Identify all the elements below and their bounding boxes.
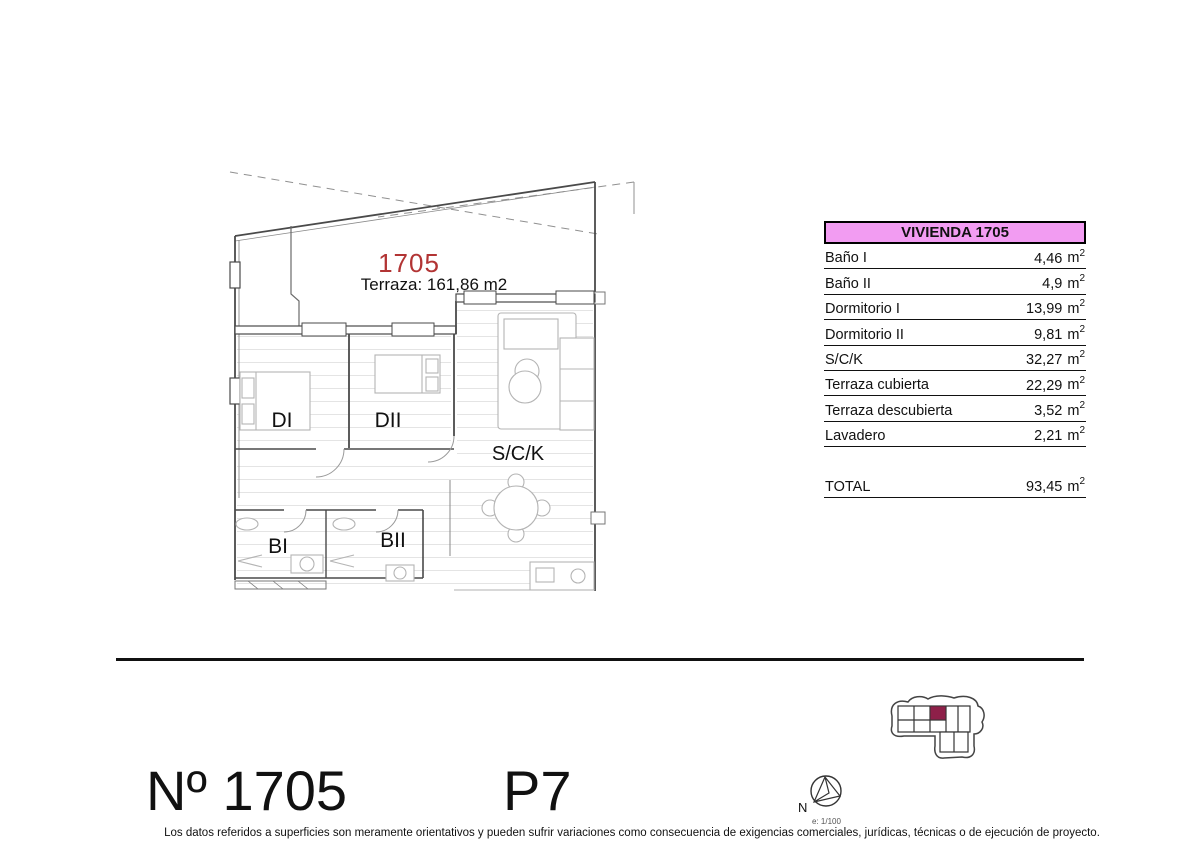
room-label-bii: BII: [380, 529, 406, 552]
roof-construction-lines: [230, 172, 634, 234]
room-label-di: DI: [272, 409, 293, 432]
row-value: 3,52m2: [1034, 401, 1085, 419]
row-value: 9,81m2: [1034, 325, 1085, 343]
disclaimer-text: Los datos referidos a superficies son me…: [0, 827, 1200, 839]
building-highlight-unit: [930, 706, 946, 720]
table-row: Lavadero 2,21m2: [824, 422, 1086, 447]
plan-unit-number: 1705: [378, 248, 440, 278]
unit-number-label: Nº 1705: [146, 758, 347, 823]
table-row: Baño I 4,46m2: [824, 244, 1086, 269]
page: 1705 Terraza: 161,86 m2 DI DII S/C/K BI …: [0, 0, 1200, 848]
room-label-bi: BI: [268, 535, 288, 558]
table-row: Dormitorio I 13,99m2: [824, 295, 1086, 320]
table-header: VIVIENDA 1705: [824, 221, 1086, 244]
room-label-dii: DII: [375, 409, 402, 432]
floor-plan: 1705 Terraza: 161,86 m2 DI DII S/C/K BI …: [228, 168, 640, 598]
floor-label: P7: [503, 758, 572, 823]
divider-line: [116, 658, 1084, 661]
room-label-sck: S/C/K: [492, 443, 545, 465]
row-label: Terraza descubierta: [825, 403, 952, 419]
row-value: 32,27m2: [1026, 350, 1085, 368]
row-label: Dormitorio I: [825, 301, 900, 317]
row-label: S/C/K: [825, 352, 863, 368]
plan-terrace-label: Terraza: 161,86 m2: [361, 275, 507, 294]
north-label: N: [798, 800, 807, 815]
table-row: Terraza cubierta 22,29m2: [824, 371, 1086, 396]
areas-table: VIVIENDA 1705 Baño I 4,46m2 Baño II 4,9m…: [824, 221, 1086, 498]
compass-icon: N e: 1/100: [792, 770, 862, 832]
row-label: Baño II: [825, 276, 871, 292]
scale-label: e: 1/100: [812, 817, 841, 826]
total-value: 93,45m2: [1026, 477, 1085, 495]
row-value: 4,46m2: [1034, 249, 1085, 267]
row-label: Lavadero: [825, 428, 885, 444]
table-row: Baño II 4,9m2: [824, 269, 1086, 294]
table-row: S/C/K 32,27m2: [824, 346, 1086, 371]
row-value: 13,99m2: [1026, 299, 1085, 317]
row-label: Dormitorio II: [825, 327, 904, 343]
row-label: Baño I: [825, 250, 867, 266]
total-label: TOTAL: [825, 479, 870, 495]
row-label: Terraza cubierta: [825, 377, 929, 393]
table-row: Dormitorio II 9,81m2: [824, 320, 1086, 345]
row-value: 4,9m2: [1042, 274, 1085, 292]
row-value: 22,29m2: [1026, 376, 1085, 394]
row-value: 2,21m2: [1034, 426, 1085, 444]
building-locator-icon: [878, 690, 1000, 762]
table-row: Terraza descubierta 3,52m2: [824, 396, 1086, 421]
table-total-row: TOTAL 93,45m2: [824, 472, 1086, 497]
